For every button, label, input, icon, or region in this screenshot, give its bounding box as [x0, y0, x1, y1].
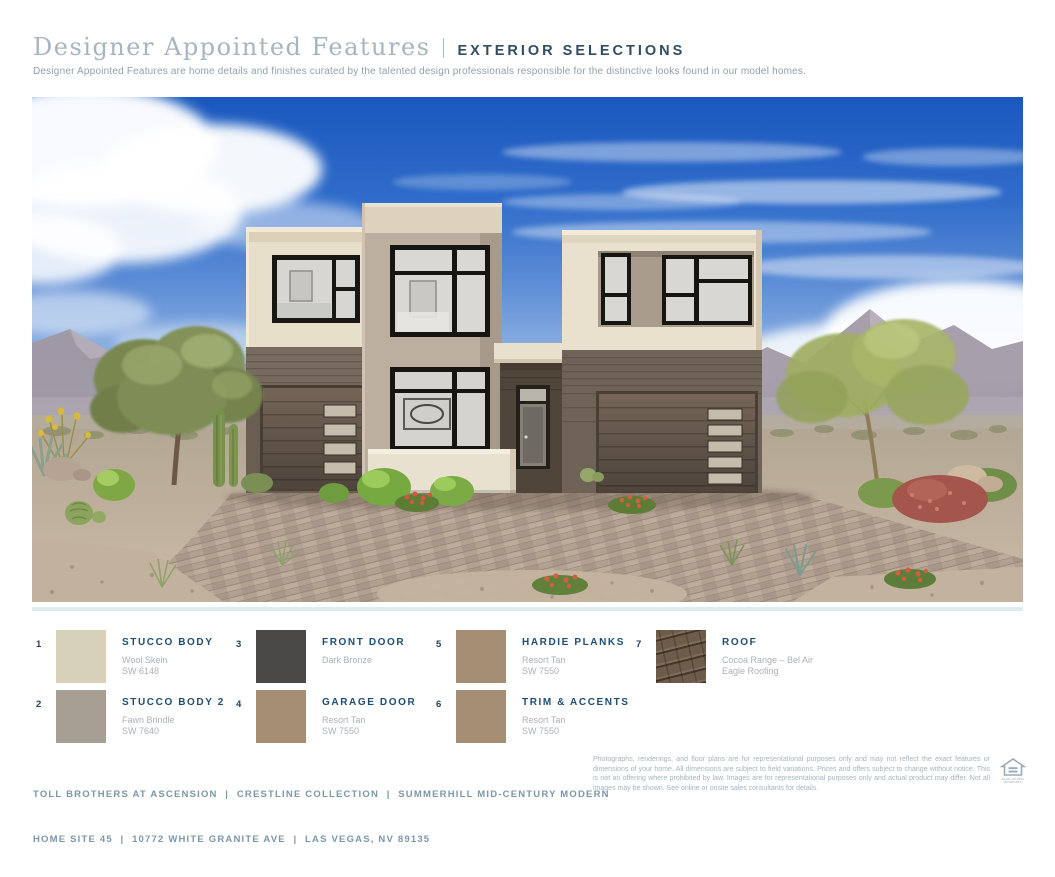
swatch-stucco-body: [56, 630, 106, 683]
swatch-stucco-body-2: [56, 690, 106, 743]
home-exterior-rendering: [32, 97, 1023, 602]
selection-color-name: Wool Skein: [122, 655, 214, 666]
selection-number: 1: [36, 639, 41, 650]
svg-text:OPPORTUNITY: OPPORTUNITY: [1003, 780, 1023, 784]
swatch-roof: [656, 630, 706, 683]
selection-number: 7: [636, 639, 641, 650]
equal-housing-logo: EQUAL HOUSING OPPORTUNITY: [999, 757, 1027, 787]
selection-item-7: 7 ROOF Cocoa Range – Bel Air Eagle Roofi…: [636, 630, 834, 686]
right-window-left: [601, 253, 631, 325]
right-window-right: [662, 255, 752, 325]
page-subtitle-tag: EXTERIOR SELECTIONS: [458, 43, 686, 59]
section-divider: [32, 607, 1023, 611]
selection-label: FRONT DOOR: [322, 637, 405, 648]
right-garage-door: [599, 394, 755, 492]
selection-number: 2: [36, 699, 41, 710]
selection-color-name: Resort Tan: [322, 715, 416, 726]
selection-number: 5: [436, 639, 441, 650]
swatch-hardie-planks: [456, 630, 506, 683]
selection-number: 4: [236, 699, 241, 710]
selection-color-code: Eagle Roofing: [722, 666, 813, 677]
tower-upper-window: [390, 245, 490, 337]
selection-color-name: Resort Tan: [522, 715, 630, 726]
footer-community-info: TOLL BROTHERS AT ASCENSION | CRESTLINE C…: [33, 757, 610, 877]
selection-color-name: Resort Tan: [522, 655, 625, 666]
selection-color-name: Fawn Brindle: [122, 715, 225, 726]
selection-color-code: SW 6148: [122, 666, 214, 677]
flyer-page: Designer Appointed FeaturesEXTERIOR SELE…: [0, 0, 1055, 815]
selection-number: 6: [436, 699, 441, 710]
selection-item-1: 1 STUCCO BODY Wool Skein SW 6148: [36, 630, 234, 686]
swatch-trim-accents: [456, 690, 506, 743]
left-upper-window: [272, 255, 360, 323]
selection-color-code: SW 7640: [122, 726, 225, 737]
footer-disclaimer: Photographs, renderings, and floor plans…: [593, 755, 990, 793]
selection-item-2: 2 STUCCO BODY 2 Fawn Brindle SW 7640: [36, 690, 234, 746]
selection-label: ROOF: [722, 637, 813, 648]
selection-color-name: Cocoa Range – Bel Air: [722, 655, 813, 666]
selection-color-code: SW 7550: [522, 666, 625, 677]
front-door: [516, 385, 550, 469]
selection-item-5: 5 HARDIE PLANKS Resort Tan SW 7550: [436, 630, 634, 686]
selection-color-name: Dark Bronze: [322, 655, 405, 666]
selection-label: GARAGE DOOR: [322, 697, 416, 708]
selection-label: TRIM & ACCENTS: [522, 697, 630, 708]
selection-item-6: 6 TRIM & ACCENTS Resort Tan SW 7550: [436, 690, 634, 746]
footer-line-2: HOME SITE 45 | 10772 WHITE GRANITE AVE |…: [33, 832, 610, 847]
selection-label: HARDIE PLANKS: [522, 637, 625, 648]
selection-color-code: SW 7550: [322, 726, 416, 737]
page-title: Designer Appointed Features: [33, 33, 431, 61]
title-separator: [443, 38, 444, 58]
selection-label: STUCCO BODY 2: [122, 697, 225, 708]
selection-number: 3: [236, 639, 241, 650]
selection-color-code: SW 7550: [522, 726, 630, 737]
swatch-garage-door: [256, 690, 306, 743]
selection-item-4: 4 GARAGE DOOR Resort Tan SW 7550: [236, 690, 434, 746]
footer-line-1: TOLL BROTHERS AT ASCENSION | CRESTLINE C…: [33, 787, 610, 802]
selection-item-3: 3 FRONT DOOR Dark Bronze: [236, 630, 434, 686]
left-garage-door: [263, 388, 363, 490]
selection-label: STUCCO BODY: [122, 637, 214, 648]
svg-text:EQUAL HOUSING: EQUAL HOUSING: [1002, 777, 1024, 781]
right-wing: [562, 230, 762, 350]
tower-lower-window: [390, 367, 490, 451]
swatch-front-door: [256, 630, 306, 683]
header-description: Designer Appointed Features are home det…: [33, 66, 806, 77]
header: Designer Appointed FeaturesEXTERIOR SELE…: [33, 33, 685, 61]
